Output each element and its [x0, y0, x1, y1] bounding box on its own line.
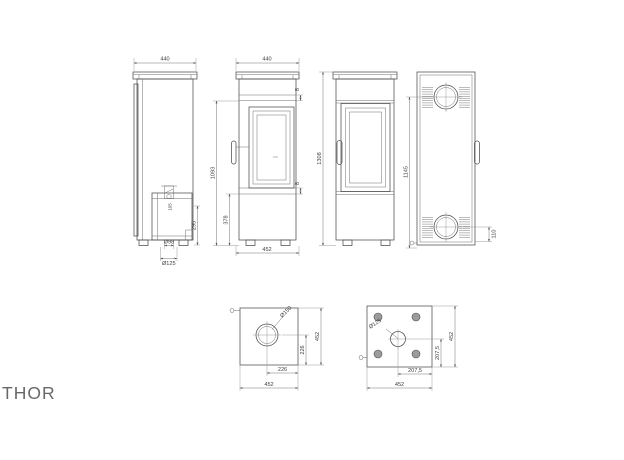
- dim-offset-226-h: 226: [278, 367, 287, 373]
- dim-width-452: 452: [395, 382, 404, 388]
- foot-pad: [412, 313, 420, 321]
- glass: [257, 115, 286, 180]
- foot-right: [179, 240, 188, 246]
- door-frame: [249, 107, 294, 188]
- glass-frame: [253, 111, 290, 184]
- rear-view: 1145 110: [404, 72, 498, 248]
- side-view: 1308: [317, 72, 397, 246]
- foot-pad: [412, 350, 420, 358]
- stove-body: [239, 79, 296, 240]
- foot-left: [139, 240, 148, 246]
- top-view: Ø150 452 226 226 452: [230, 305, 324, 391]
- vent-grille-bottom-right: [459, 218, 470, 238]
- dim-base-452: 452: [262, 247, 271, 253]
- foot-left: [343, 240, 352, 246]
- dim-offset-226-v: 226: [300, 345, 306, 354]
- vent-grille-top-right: [459, 88, 470, 108]
- base-view: Ø125 452 207,5 207,5 452: [359, 306, 458, 391]
- product-name-label: THOR: [2, 383, 56, 404]
- foot-right: [381, 240, 390, 246]
- dim-valve-105: 105: [168, 203, 173, 211]
- dia-leader: [272, 317, 283, 330]
- dim-height-1308: 1308: [317, 152, 323, 164]
- dim-offset-110: 110: [492, 230, 498, 239]
- dim-dia-125: Ø125: [368, 318, 383, 331]
- top-plate-detail: [333, 75, 397, 79]
- foot-pad: [374, 350, 382, 358]
- drawing-canvas: 440 295 105 Ø98 Ø125 440 8 8 1093 378 45…: [0, 0, 624, 460]
- dia-leader: [386, 329, 398, 339]
- top-plate: [133, 72, 197, 79]
- top-plate: [333, 72, 397, 79]
- dim-height-1093: 1093: [211, 167, 217, 179]
- lower-compartment: [152, 193, 192, 240]
- top-plate-detail: [133, 75, 197, 79]
- dim-width-440: 440: [262, 57, 271, 63]
- side-section-view: 440 295 105 Ø98 Ø125: [133, 57, 200, 267]
- door-frame: [341, 104, 390, 192]
- datum-mark: [410, 241, 414, 245]
- dim-gap-bottom-8: 8: [295, 182, 301, 185]
- compartment-detail: [152, 193, 192, 240]
- dim-height-1145: 1145: [404, 166, 410, 178]
- door-front-strip: [134, 84, 138, 236]
- inlet-centerlines: [388, 329, 408, 349]
- technical-drawing-sheet: 440 295 105 Ø98 Ø125 440 8 8 1093 378 45…: [0, 0, 624, 460]
- door-handle: [232, 141, 237, 164]
- dim-width-440: 440: [160, 57, 169, 63]
- lower-flue-centerlines: [430, 212, 462, 242]
- flue-centerlines: [253, 321, 281, 349]
- dim-dia-150: Ø150: [279, 305, 293, 319]
- air-inlet-pipe: [165, 186, 174, 199]
- dim-offset-2075-v: 207,5: [435, 346, 441, 360]
- inlet-valve-flap: [161, 186, 177, 193]
- panel-bands: [239, 95, 296, 194]
- dim-depth-452: 452: [449, 332, 455, 341]
- datum-mark: [230, 309, 234, 313]
- datum-mark: [359, 356, 363, 360]
- dim-height-295: 295: [192, 221, 198, 230]
- inlet-valve-knob: [167, 194, 171, 198]
- foot-right: [281, 240, 290, 246]
- vent-grille-bottom-left: [422, 218, 433, 238]
- extension-lines: [134, 58, 200, 261]
- dim-depth-452: 452: [315, 332, 321, 341]
- dim-plinth-378: 378: [224, 215, 230, 224]
- extension-lines: [406, 97, 492, 248]
- glass-frame: [346, 108, 386, 187]
- upper-flue-centerlines: [430, 82, 462, 112]
- top-plate-plan: [240, 308, 298, 365]
- top-plate-detail: [236, 75, 299, 79]
- extension-lines: [240, 308, 324, 391]
- stove-body: [137, 79, 193, 240]
- top-plate: [236, 72, 299, 79]
- front-view: 440 8 8 1093 378 452: [211, 57, 304, 257]
- dim-gap-top-8: 8: [295, 88, 301, 91]
- glass: [350, 112, 382, 183]
- vent-grille-top-left: [422, 88, 433, 108]
- extension-lines: [213, 58, 303, 256]
- foot-left: [246, 240, 255, 246]
- dim-dia-125: Ø125: [162, 261, 176, 267]
- dim-width-452: 452: [264, 382, 273, 388]
- dim-offset-2075-h: 207,5: [408, 368, 422, 374]
- dim-dia-98: Ø98: [164, 239, 175, 245]
